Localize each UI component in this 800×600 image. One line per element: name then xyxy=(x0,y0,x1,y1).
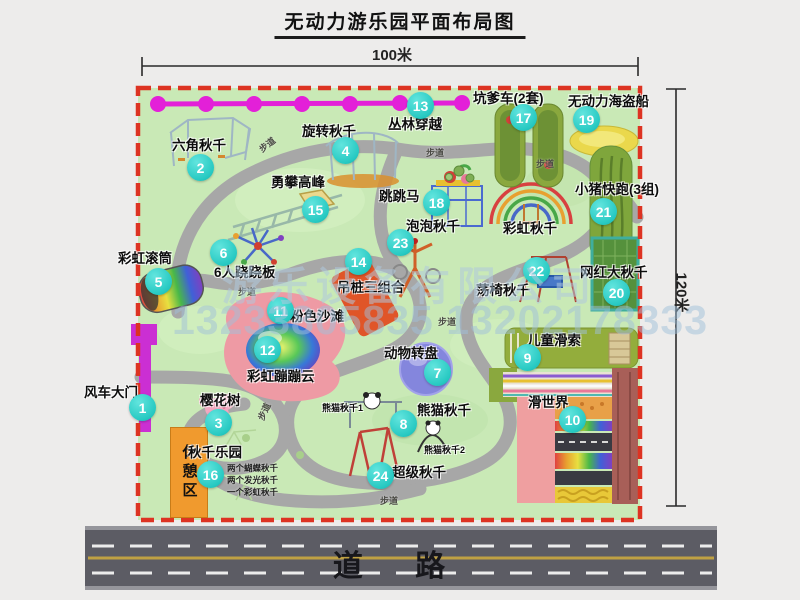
swing-park-detail-1: 两个蝴蝶秋千 xyxy=(227,462,278,474)
item-1-label: 风车大门 xyxy=(84,386,138,401)
item-15-label: 勇攀高峰 xyxy=(271,176,325,191)
item-21-label: 小猪快跑(3组) xyxy=(575,183,659,198)
item-16-label: 秋千乐园 xyxy=(188,446,242,461)
road-label: 道 路 xyxy=(333,541,467,585)
trail-label: 步道 xyxy=(426,146,444,159)
item-21-badge: 21 xyxy=(590,198,617,225)
item-7-label: 动物转盘 xyxy=(384,347,438,362)
item-15-badge: 15 xyxy=(302,196,329,223)
panda-swing-2-label: 熊猫秋千2 xyxy=(424,446,465,456)
item-23-badge: 23 xyxy=(387,229,414,256)
item-18-label: 跳跳马 xyxy=(379,190,420,205)
item-8-label: 熊猫秋千 xyxy=(417,404,471,419)
swing-park-detail-2: 两个发光秋千 xyxy=(227,474,278,486)
item-12-label: 彩虹蹦蹦云 xyxy=(247,370,315,385)
item-16-badge: 16 xyxy=(197,461,224,488)
swing-park-details: 两个蝴蝶秋千 两个发光秋千 一个彩虹秋千 xyxy=(227,462,278,498)
item-24-badge: 24 xyxy=(367,462,394,489)
trail-label: 步道 xyxy=(380,494,398,507)
item-13-badge: 13 xyxy=(407,92,434,119)
item-2-label: 六角秋千 xyxy=(172,139,226,154)
item-7-badge: 7 xyxy=(424,359,451,386)
item-3-label: 樱花树 xyxy=(200,394,241,409)
item-24-label: 超级秋千 xyxy=(392,466,446,481)
swing-park-detail-3: 一个彩虹秋千 xyxy=(227,486,278,498)
item-1-badge: 1 xyxy=(129,394,156,421)
item-13-label: 丛林穿越 xyxy=(388,118,442,133)
item-8-badge: 8 xyxy=(390,410,417,437)
item-19-badge: 19 xyxy=(573,106,600,133)
item-23-label: 泡泡秋千 xyxy=(406,220,460,235)
item-18-badge: 18 xyxy=(423,189,450,216)
item-17-label: 坑爹车(2套) xyxy=(473,92,544,107)
panda-swing-1-label: 熊猫秋千1 xyxy=(322,404,363,414)
item-5-label: 彩虹滚筒 xyxy=(118,252,172,267)
park-layout-plan: 无动力游乐园平面布局图 100米 120米 风车大门 六角秋千 樱花树 旋转秋千… xyxy=(0,0,800,600)
item-17-badge: 17 xyxy=(510,104,537,131)
item-2-badge: 2 xyxy=(187,154,214,181)
item-4-badge: 4 xyxy=(332,137,359,164)
item-5-badge: 5 xyxy=(145,268,172,295)
item-3-badge: 3 xyxy=(205,409,232,436)
item-10-badge: 10 xyxy=(559,406,586,433)
item-9-badge: 9 xyxy=(514,344,541,371)
rainbow-swing-label: 彩虹秋千 xyxy=(503,222,557,237)
trail-label: 步道 xyxy=(536,157,554,170)
watermark-phone: 13233805835 13202178333 xyxy=(172,297,708,344)
